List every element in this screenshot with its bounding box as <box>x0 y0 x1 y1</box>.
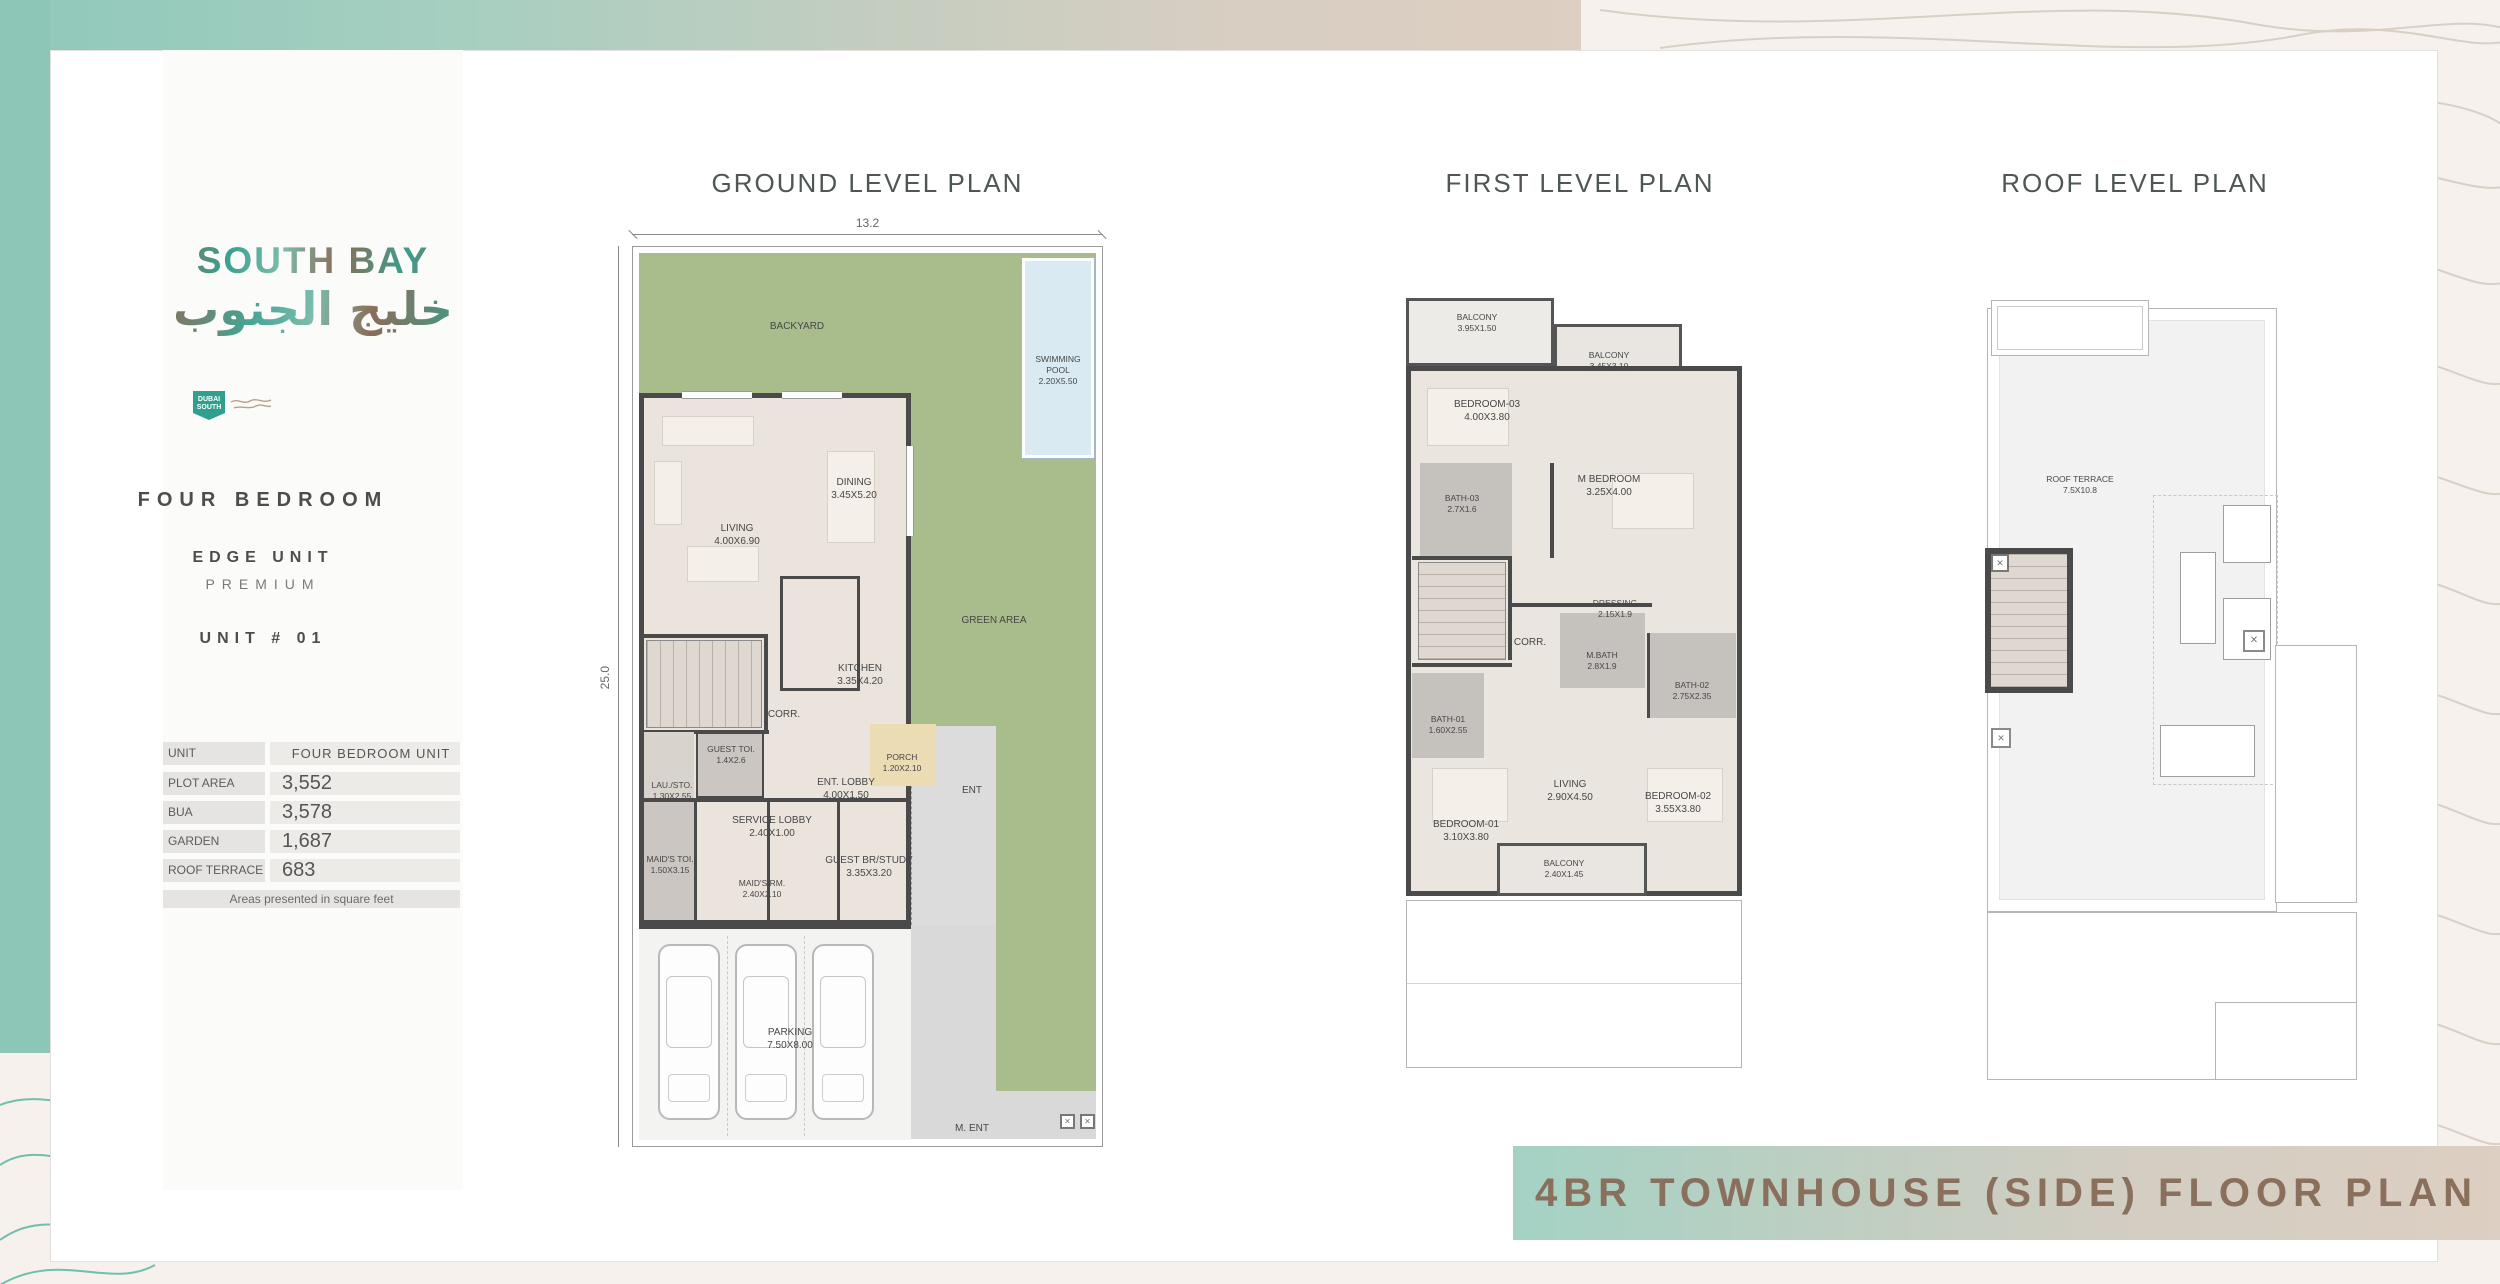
wall-segment <box>1412 663 1512 667</box>
first-level-plan: BALCONY3.95X1.50 BALCONY3.45X3.10 BEDROO… <box>1402 288 1758 1078</box>
room-label: GUEST TOI.1.4X2.6 <box>707 744 755 766</box>
brand-logo-arabic: خليج الجنوب <box>163 282 463 336</box>
staircase <box>1418 562 1506 660</box>
lower-roof-notch <box>2215 1002 2357 1080</box>
room-label: ENT. LOBBY4.00X1.50 <box>817 776 875 802</box>
dimension-line-top <box>632 234 1103 235</box>
unit-number-heading: UNIT # 01 <box>113 630 413 648</box>
coffee-table <box>687 546 759 582</box>
car-outline <box>812 944 874 1120</box>
car-outline <box>658 944 720 1120</box>
lounge-chair <box>2223 505 2271 563</box>
sheet-title-banner: 4BR TOWNHOUSE (SIDE) FLOOR PLAN <box>1513 1146 2500 1240</box>
table-label-plot-area: PLOT AREA <box>163 772 265 795</box>
room-label: ENT <box>962 784 982 797</box>
room-label: BALCONY3.45X3.10 <box>1589 350 1630 372</box>
adjacent-roof-outline <box>2275 645 2357 903</box>
ground-level-plan: 13.2 25.0 <box>632 246 1103 1147</box>
room-label: MAID'S RM.2.40X2.10 <box>739 878 785 900</box>
room-label: SWIMMING POOL2.20X5.50 <box>1023 354 1093 387</box>
table-value-plot-area: 3,552 <box>270 772 460 795</box>
room-label: PARKING7.50X8.00 <box>767 1026 813 1052</box>
room-label: BEDROOM-023.55X3.80 <box>1645 790 1711 816</box>
table-value-unit: FOUR BEDROOM UNIT <box>270 742 460 765</box>
room-label: LIVING4.00X6.90 <box>714 522 760 548</box>
room-label: BEDROOM-013.10X3.80 <box>1433 818 1499 844</box>
wall-segment <box>1550 463 1554 558</box>
sofa <box>662 416 754 446</box>
room-label: LAU./STO.1.30X2.55 <box>652 780 693 802</box>
table-label-unit: UNIT <box>163 742 265 765</box>
left-accent-band <box>0 0 50 1053</box>
room-label: BALCONY2.40X1.45 <box>1544 858 1585 880</box>
room-label: ROOF TERRACE7.5X10.8 <box>2046 474 2113 496</box>
staircase <box>646 640 762 728</box>
top-gradient-band <box>0 0 1581 50</box>
lower-roof-line <box>1407 983 1741 984</box>
wall-segment <box>644 634 764 638</box>
pergola-inner <box>1997 306 2143 350</box>
brand-logo-english: SOUTH BAY <box>163 240 463 282</box>
room-label: DRESSING2.15X1.9 <box>1593 598 1637 620</box>
room-label: SERVICE LOBBY2.40X1.00 <box>732 814 812 840</box>
room-label: DINING3.45X5.20 <box>831 476 877 502</box>
room-label: PORCH1.20X2.10 <box>883 752 922 774</box>
wall-segment <box>1647 633 1650 718</box>
room-label: MAID'S TOI.1.50X3.15 <box>646 854 693 876</box>
wall-segment <box>1508 560 1512 660</box>
roof-plan-title: ROOF LEVEL PLAN <box>1985 168 2285 199</box>
room-label: BEDROOM-034.00X3.80 <box>1454 398 1520 424</box>
room-label: BALCONY3.95X1.50 <box>1457 312 1498 334</box>
unit-class-heading: EDGE UNIT <box>113 549 413 567</box>
window <box>782 391 842 399</box>
unit-type-heading: FOUR BEDROOM <box>113 489 413 512</box>
sidebar-panel <box>163 50 463 1190</box>
window <box>682 391 752 399</box>
room-label: GREEN AREA <box>961 614 1026 627</box>
utility-meter-box: ✕ <box>1060 1114 1075 1129</box>
roof-level-plan: ✕ ✕ ✕ ROOF TERRACE7.5X10.8 <box>1985 300 2395 1092</box>
table-footnote: Areas presented in square feet <box>163 890 460 908</box>
skylight-box: ✕ <box>1991 728 2011 748</box>
ground-height-dimension: 25.0 <box>598 666 612 689</box>
table-label-garden: GARDEN <box>163 830 265 853</box>
room-label: LIVING2.90X4.50 <box>1547 778 1593 804</box>
room-label: M. ENT <box>955 1122 989 1135</box>
side-garden-lower <box>996 726 1096 1091</box>
sofa <box>654 461 682 525</box>
room-label: BACKYARD <box>770 320 824 333</box>
wall-segment <box>1412 556 1512 560</box>
page: SOUTH BAY خليج الجنوب DUBAI SOUTH FOUR B… <box>0 0 2500 1284</box>
ground-width-dimension: 13.2 <box>632 216 1103 230</box>
room-label: BATH-011.60X2.55 <box>1429 714 1468 736</box>
room-label: BATH-032.7X1.6 <box>1445 493 1479 515</box>
daybed <box>2160 725 2255 777</box>
room-label: M.BATH2.8X1.9 <box>1586 650 1617 672</box>
utility-meter-box: ✕ <box>1080 1114 1095 1129</box>
hatch-box: ✕ <box>1991 554 2009 572</box>
ground-plan-title: GROUND LEVEL PLAN <box>632 168 1103 199</box>
wall-segment <box>694 802 697 922</box>
parking-divider <box>727 936 729 1136</box>
room-label: M BEDROOM3.25X4.00 <box>1578 473 1641 499</box>
table-label-bua: BUA <box>163 801 265 824</box>
bed <box>1432 768 1508 822</box>
room-label: CORR. <box>1514 636 1546 649</box>
unit-tier-heading: PREMIUM <box>113 576 413 592</box>
badge-arabic-scribble <box>230 396 272 412</box>
lower-roof-outline <box>1406 900 1742 1068</box>
bath-02-floor <box>1650 633 1736 718</box>
table-value-roof-terrace: 683 <box>270 859 460 882</box>
dimension-line-left <box>618 246 619 1147</box>
room-label: BATH-022.75X2.35 <box>1673 680 1712 702</box>
room-label: GUEST BR/STUDY3.35X3.20 <box>825 854 913 880</box>
window <box>906 446 914 536</box>
room-label: CORR. <box>768 708 800 721</box>
roof-table <box>2180 552 2216 644</box>
skylight-box: ✕ <box>2243 630 2265 652</box>
room-label: KITCHEN3.35X4.20 <box>837 662 883 688</box>
first-plan-title: FIRST LEVEL PLAN <box>1402 168 1758 199</box>
table-value-garden: 1,687 <box>270 830 460 853</box>
sheet-title-text: 4BR TOWNHOUSE (SIDE) FLOOR PLAN <box>1535 1171 2478 1216</box>
table-value-bua: 3,578 <box>270 801 460 824</box>
table-label-roof-terrace: ROOF TERRACE <box>163 859 265 882</box>
